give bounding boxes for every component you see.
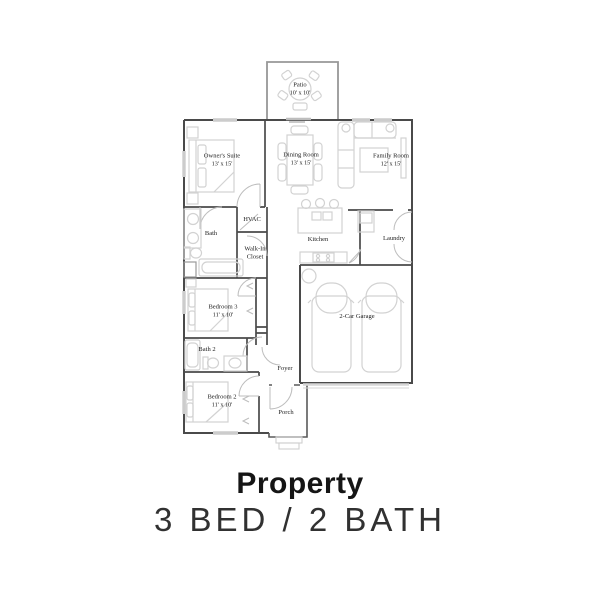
car-icon [358, 283, 404, 372]
bath2-door-icon [243, 337, 262, 356]
room-label-owners-suite: Owner's Suite 13' x 15' [204, 153, 240, 168]
wall-break-chevron-icon [247, 308, 253, 314]
bath-door-icon [200, 207, 222, 229]
car-icon [308, 283, 354, 372]
kitchen-island-icon [298, 199, 342, 234]
bedroom3-door-icon [238, 278, 256, 296]
bed-bath-subtitle: 3 BED / 2 BATH [0, 501, 600, 538]
room-label-patio: Patio 10' x 10' [290, 82, 311, 97]
floorplan-page: Patio 10' x 10' Owner's Suite 13' x 15' … [0, 0, 600, 600]
room-label-bedroom3: Bedroom 3 11' x 10' [208, 304, 237, 319]
stove-counter-icon [300, 252, 347, 263]
bath2-toilet-icon [203, 357, 219, 369]
wall-break-chevron-icon [243, 418, 249, 424]
owners-suite-door-icon [237, 184, 260, 207]
room-label-garage: 2-Car Garage [339, 313, 374, 321]
room-label-bath: Bath [205, 230, 217, 238]
room-label-family-room: Family Room 12' x 15' [373, 153, 409, 168]
title-block: Property 3 BED / 2 BATH [0, 467, 600, 538]
patio-chair-icon [281, 70, 292, 81]
room-label-laundry: Laundry [383, 235, 405, 243]
garage-door-icon [303, 385, 409, 389]
room-label-dining-room: Dining Room 13' x 15' [283, 152, 319, 167]
laundry-door-icon [394, 212, 412, 230]
room-label-porch: Porch [278, 409, 293, 417]
linen-closet-icon [184, 262, 196, 277]
patio-grill-icon [293, 103, 307, 110]
water-heater-icon [302, 269, 316, 283]
bath2-sink-icon [224, 356, 247, 371]
room-label-kitchen: Kitchen [308, 236, 329, 244]
patio-chair-icon [311, 90, 322, 101]
room-label-bath2: Bath 2 [198, 346, 215, 354]
wall-break-chevron-icon [243, 396, 249, 402]
wall-break-chevron-icon [247, 283, 253, 289]
room-label-bedroom2: Bedroom 2 11' x 10' [207, 394, 236, 409]
room-label-foyer: Foyer [277, 365, 292, 373]
bedroom2-door-icon [239, 376, 259, 396]
foyer-door-icon [262, 347, 280, 365]
room-label-walkin-closet: Walk-In Closet [237, 245, 273, 260]
porch-steps [276, 437, 302, 449]
bath-vanity-icon [184, 209, 201, 248]
laundry-door-icon [394, 244, 412, 262]
bath2-tub-icon [185, 340, 200, 370]
patio-chair-icon [308, 70, 319, 81]
property-title: Property [0, 467, 600, 501]
room-label-hvac: HVAC [243, 216, 261, 224]
front-door-icon [270, 387, 292, 409]
patio-chair-icon [277, 90, 288, 101]
toilet-icon [184, 247, 202, 259]
